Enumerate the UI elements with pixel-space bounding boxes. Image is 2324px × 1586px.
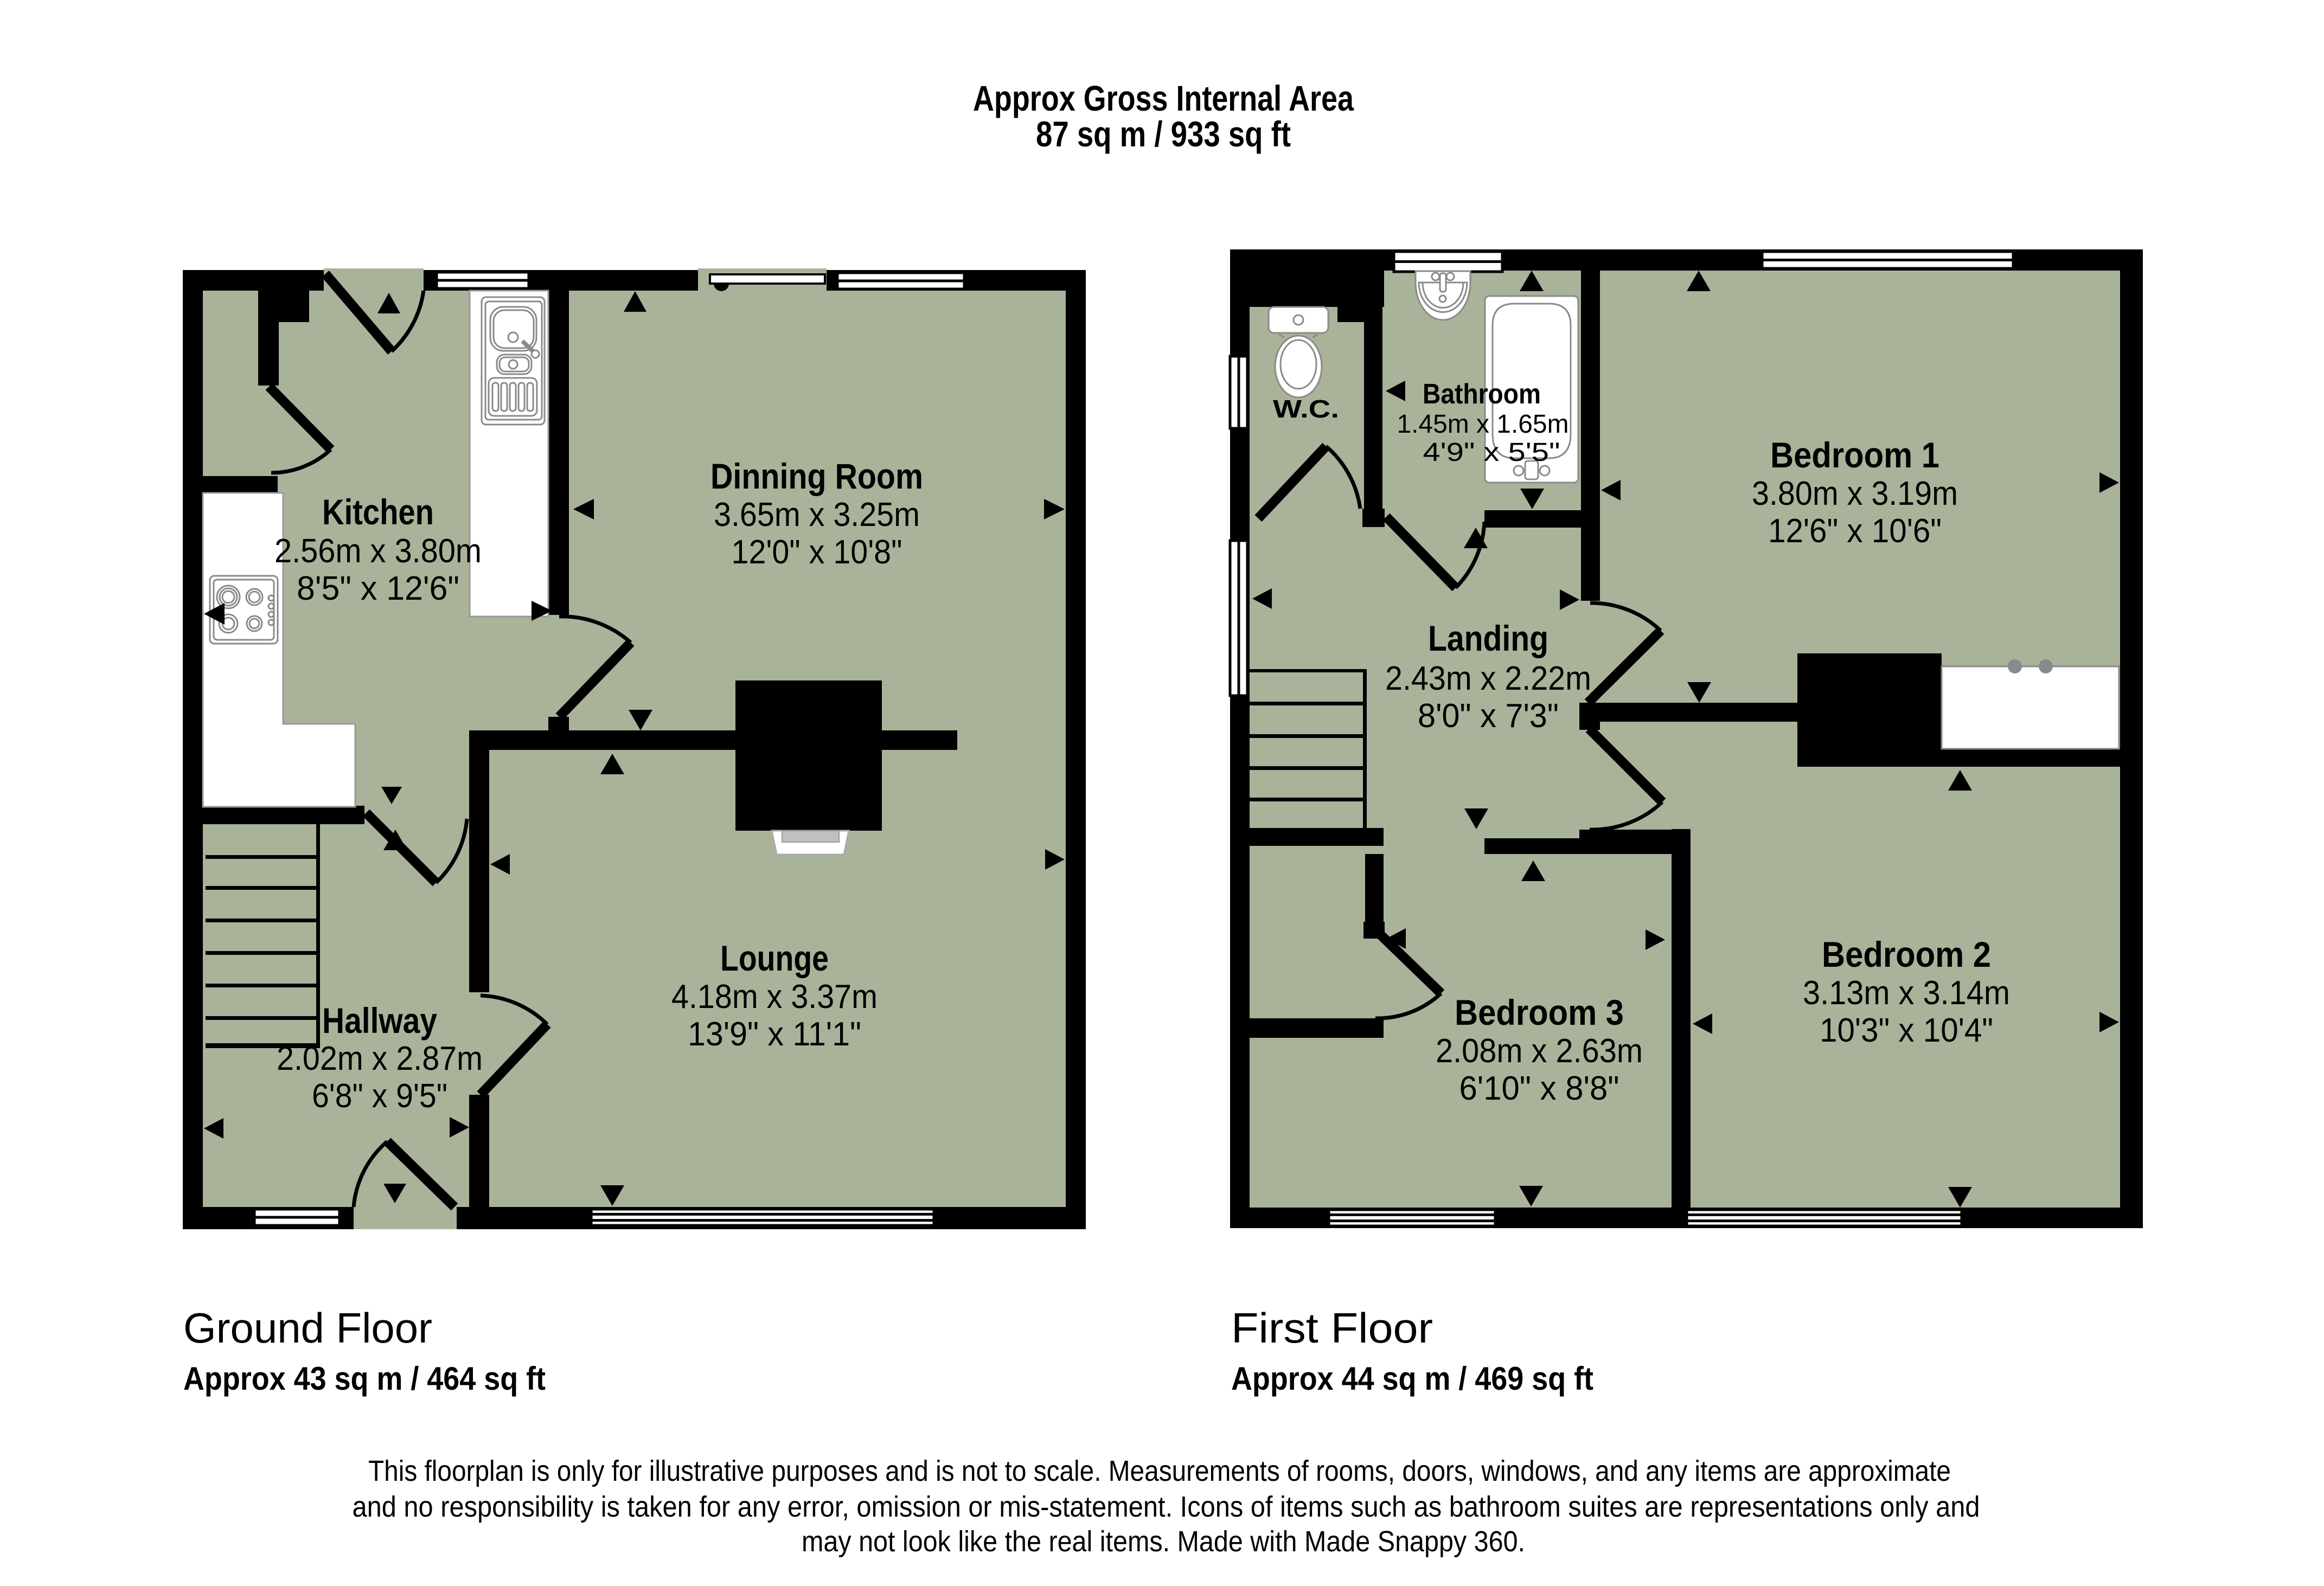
svg-text:Hallway: Hallway bbox=[322, 1000, 437, 1041]
svg-text:12'6" x 10'6": 12'6" x 10'6" bbox=[1768, 512, 1942, 550]
svg-text:6'10" x 8'8": 6'10" x 8'8" bbox=[1459, 1070, 1619, 1107]
svg-text:1.45m x 1.65m: 1.45m x 1.65m bbox=[1397, 410, 1569, 439]
svg-text:12'0" x 10'8": 12'0" x 10'8" bbox=[732, 534, 902, 571]
svg-text:3.13m x 3.14m: 3.13m x 3.14m bbox=[1803, 974, 2010, 1012]
svg-text:4'9" x 5'5": 4'9" x 5'5" bbox=[1423, 438, 1560, 467]
svg-text:Approx 43 sq m / 464 sq ft: Approx 43 sq m / 464 sq ft bbox=[183, 1360, 546, 1397]
svg-text:and no responsibility is taken: and no responsibility is taken for any e… bbox=[353, 1491, 1980, 1523]
svg-text:Landing: Landing bbox=[1428, 618, 1548, 658]
svg-text:Bedroom 1: Bedroom 1 bbox=[1770, 435, 1939, 475]
svg-text:Ground Floor: Ground Floor bbox=[183, 1304, 432, 1352]
svg-text:3.80m x 3.19m: 3.80m x 3.19m bbox=[1752, 475, 1958, 512]
svg-text:2.08m x 2.63m: 2.08m x 2.63m bbox=[1436, 1032, 1643, 1070]
svg-text:2.02m x 2.87m: 2.02m x 2.87m bbox=[277, 1040, 483, 1077]
svg-text:4.18m x 3.37m: 4.18m x 3.37m bbox=[671, 978, 878, 1016]
svg-text:10'3" x 10'4": 10'3" x 10'4" bbox=[1820, 1012, 1993, 1049]
svg-text:This floorplan is only for ill: This floorplan is only for illustrative … bbox=[368, 1455, 1951, 1487]
svg-text:87 sq m / 933 sq ft: 87 sq m / 933 sq ft bbox=[1036, 114, 1291, 154]
svg-text:2.56m x 3.80m: 2.56m x 3.80m bbox=[274, 532, 482, 570]
svg-text:Bedroom 2: Bedroom 2 bbox=[1822, 934, 1991, 974]
svg-text:Approx 44 sq m / 469 sq ft: Approx 44 sq m / 469 sq ft bbox=[1231, 1360, 1593, 1397]
svg-text:W.C.: W.C. bbox=[1273, 395, 1339, 423]
svg-text:First Floor: First Floor bbox=[1231, 1304, 1433, 1352]
svg-text:8'5" x 12'6": 8'5" x 12'6" bbox=[297, 570, 459, 607]
svg-text:Dinning Room: Dinning Room bbox=[710, 456, 923, 496]
svg-text:8'0" x 7'3": 8'0" x 7'3" bbox=[1418, 697, 1559, 735]
svg-text:Approx Gross Internal Area: Approx Gross Internal Area bbox=[973, 78, 1354, 118]
svg-text:Kitchen: Kitchen bbox=[322, 492, 434, 532]
svg-text:2.43m x 2.22m: 2.43m x 2.22m bbox=[1385, 660, 1591, 697]
svg-text:13'9" x 11'1": 13'9" x 11'1" bbox=[688, 1016, 861, 1053]
svg-text:Bathroom: Bathroom bbox=[1423, 378, 1541, 410]
svg-text:may not look like the real ite: may not look like the real items. Made w… bbox=[802, 1525, 1525, 1558]
svg-text:6'8" x 9'5": 6'8" x 9'5" bbox=[312, 1077, 447, 1115]
svg-text:Bedroom 3: Bedroom 3 bbox=[1455, 992, 1624, 1032]
svg-text:3.65m x 3.25m: 3.65m x 3.25m bbox=[714, 496, 920, 534]
svg-text:Lounge: Lounge bbox=[720, 938, 829, 978]
